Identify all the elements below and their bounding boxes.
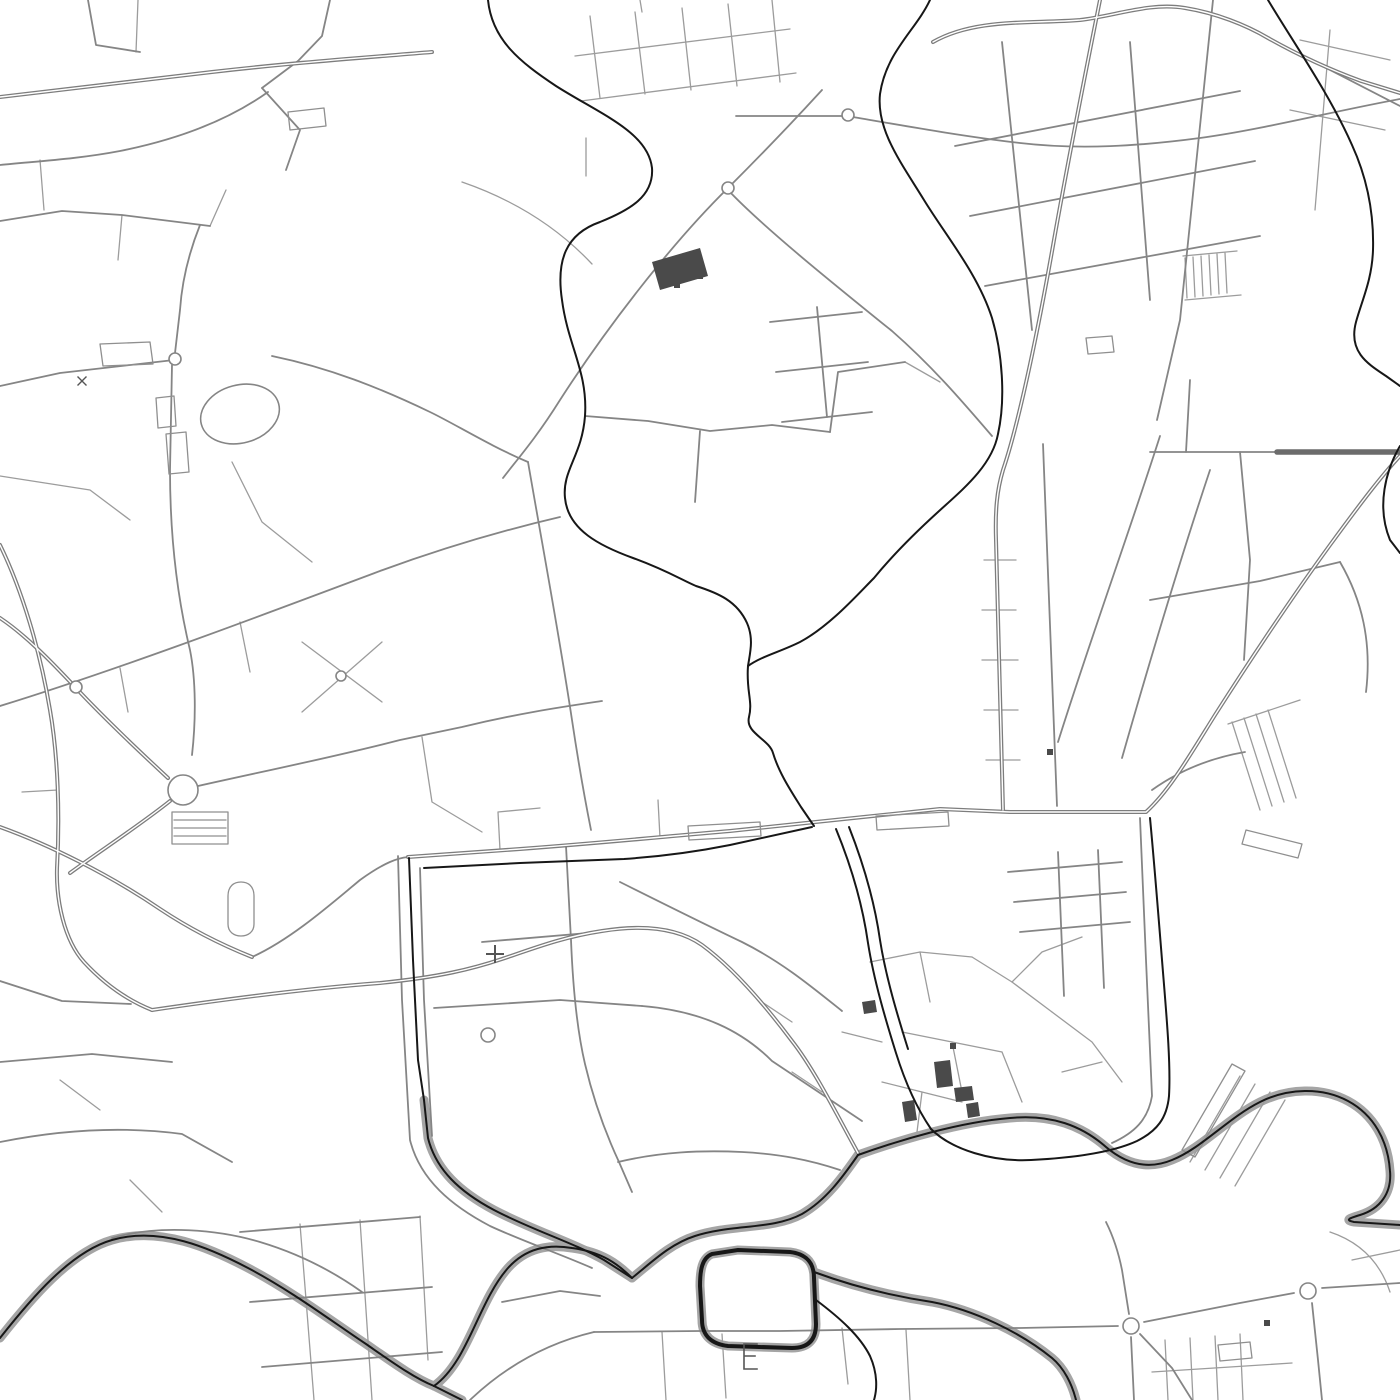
roundabout-icon (481, 1028, 495, 1042)
street-map (0, 0, 1400, 1400)
pond-loop-layer (700, 1250, 816, 1348)
pond-outline-icon (194, 376, 286, 453)
roundabout-icon (722, 182, 734, 194)
waterway-layer (0, 0, 1400, 1400)
medium-road-layer (0, 0, 1400, 1400)
roundabout-icon (1300, 1283, 1316, 1299)
junction-tick-icon (78, 377, 86, 385)
minor-road-layer (0, 0, 1400, 1400)
symbol-layer (70, 109, 1316, 1369)
roundabout-icon (168, 775, 198, 805)
structure-outline-layer (100, 108, 1302, 1361)
building-layer (652, 248, 1270, 1326)
roundabout-icon (336, 671, 346, 681)
roundabout-icon (842, 109, 854, 121)
roundabout-icon (1123, 1318, 1139, 1334)
map-viewport (0, 0, 1400, 1400)
roundabout-icon (169, 353, 181, 365)
roundabout-icon (70, 681, 82, 693)
